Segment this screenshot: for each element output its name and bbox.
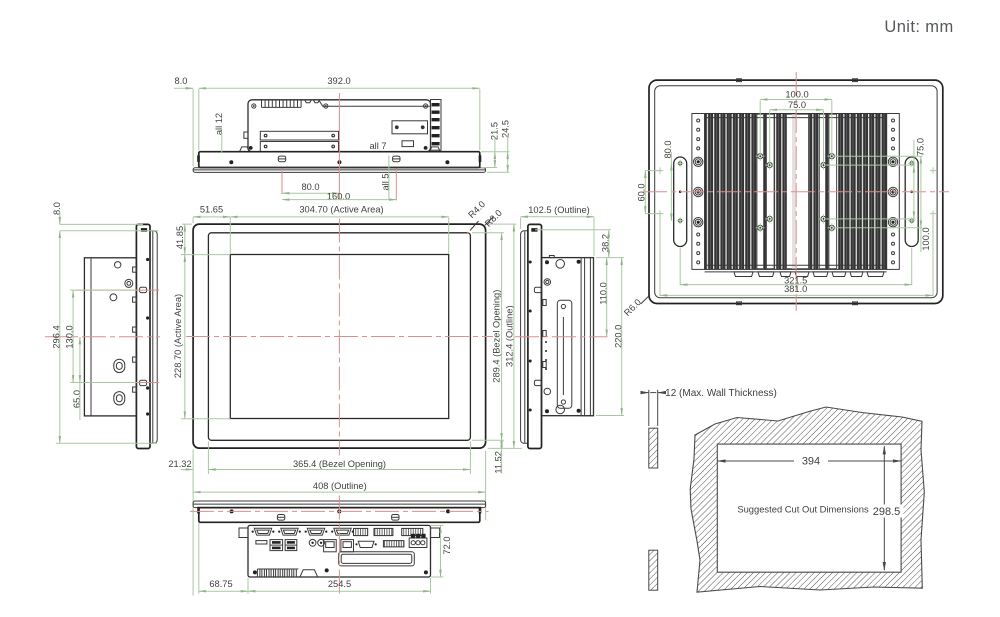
svg-text:Unit: mm: Unit: mm <box>884 18 953 36</box>
svg-text:394: 394 <box>802 456 820 468</box>
svg-text:254.5: 254.5 <box>328 579 351 589</box>
svg-text:381.0: 381.0 <box>784 284 807 294</box>
svg-text:312.4 (Outline): 312.4 (Outline) <box>504 305 514 367</box>
svg-text:8.0: 8.0 <box>175 76 188 86</box>
svg-text:51.65: 51.65 <box>200 205 223 215</box>
svg-text:8.0: 8.0 <box>52 202 62 215</box>
svg-text:298.5: 298.5 <box>873 506 901 518</box>
svg-text:100.0: 100.0 <box>785 89 808 99</box>
svg-text:Suggested Cut Out Dimensions: Suggested Cut Out Dimensions <box>737 504 869 515</box>
svg-text:12 (Max. Wall Thickness): 12 (Max. Wall Thickness) <box>665 388 777 399</box>
svg-text:304.70 (Active Area): 304.70 (Active Area) <box>299 205 383 215</box>
svg-text:75.0: 75.0 <box>788 100 806 110</box>
svg-text:80.0: 80.0 <box>301 182 319 192</box>
svg-text:21.5: 21.5 <box>490 122 500 140</box>
svg-text:365.4 (Bezel Opening): 365.4 (Bezel Opening) <box>293 459 386 469</box>
svg-text:11.52: 11.52 <box>494 451 504 474</box>
svg-text:24.5: 24.5 <box>501 120 511 138</box>
svg-text:65.0: 65.0 <box>72 390 82 408</box>
svg-text:21.32: 21.32 <box>168 459 191 469</box>
svg-text:75.0: 75.0 <box>916 138 926 156</box>
svg-text:102.5 (Outline): 102.5 (Outline) <box>528 205 590 215</box>
svg-text:408 (Outline): 408 (Outline) <box>313 481 367 491</box>
svg-text:100.0: 100.0 <box>921 227 931 250</box>
svg-text:41.85: 41.85 <box>175 226 185 249</box>
svg-text:228.70 (Active Area): 228.70 (Active Area) <box>173 294 183 378</box>
svg-text:all 12: all 12 <box>214 113 224 135</box>
svg-text:392.0: 392.0 <box>327 76 350 86</box>
svg-text:72.0: 72.0 <box>442 536 452 554</box>
svg-text:68.75: 68.75 <box>209 579 232 589</box>
svg-text:289.4 (Bezel Opening): 289.4 (Bezel Opening) <box>492 290 502 383</box>
svg-text:all 7: all 7 <box>369 141 386 151</box>
